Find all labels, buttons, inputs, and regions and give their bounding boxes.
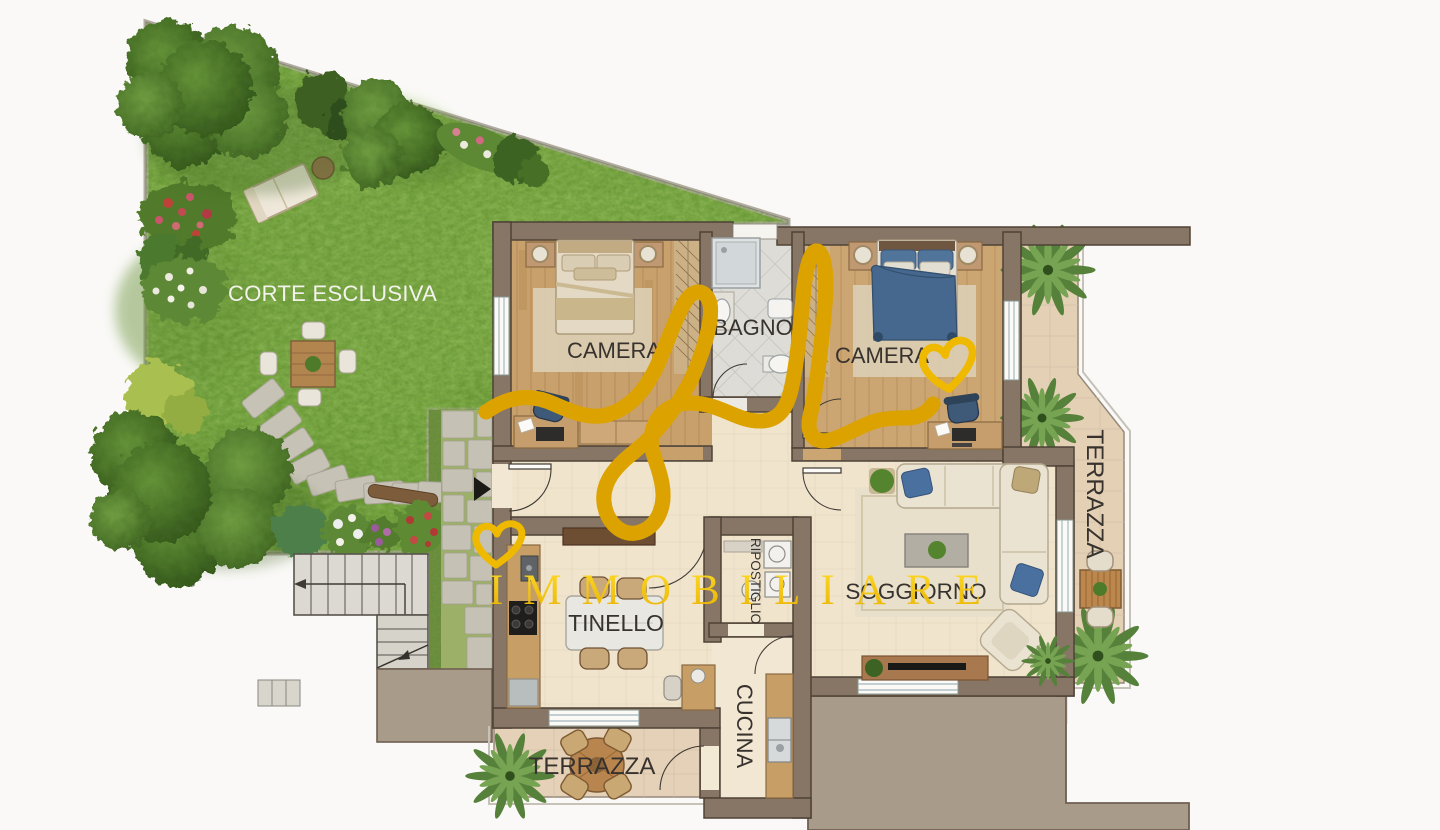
- svg-text:CUCINA: CUCINA: [732, 684, 757, 769]
- svg-text:CORTE ESCLUSIVA: CORTE ESCLUSIVA: [228, 281, 437, 306]
- svg-text:CAMERA: CAMERA: [567, 338, 661, 363]
- svg-text:CAMERA: CAMERA: [835, 343, 929, 368]
- svg-text:BAGNO: BAGNO: [713, 315, 792, 340]
- svg-text:TERRAZZA: TERRAZZA: [1081, 429, 1108, 559]
- svg-text:TERRAZZA: TERRAZZA: [529, 753, 656, 780]
